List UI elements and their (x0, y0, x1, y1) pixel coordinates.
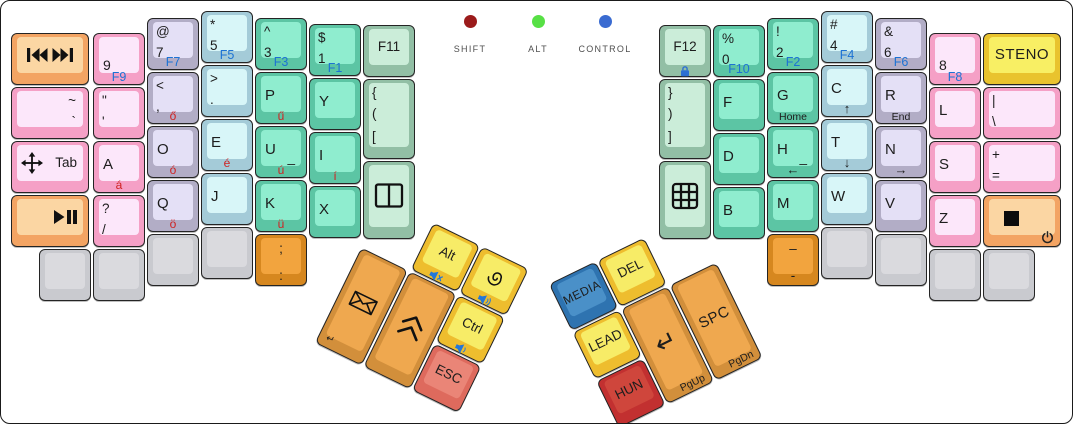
alt-indicator-dot (532, 15, 545, 28)
key-label: = (992, 169, 1000, 183)
key-media-prev-next[interactable] (11, 33, 89, 85)
keycap-top (989, 199, 1055, 235)
key-label: ü (256, 218, 306, 230)
keycap-top (989, 91, 1055, 127)
key-blank-right-3[interactable] (929, 249, 981, 301)
move-icon (21, 142, 43, 183)
media-prev-next-icon (12, 34, 88, 75)
key-label: End (876, 112, 926, 123)
key-f11[interactable]: F11 (363, 25, 415, 77)
key-label: J (211, 189, 219, 204)
key-label: Z (939, 211, 948, 226)
keycap-top (99, 253, 139, 289)
control-indicator-dot (599, 15, 612, 28)
grid-icon (660, 162, 710, 229)
key-amp-6[interactable]: &6F6 (875, 18, 927, 70)
key-window-split[interactable] (363, 161, 415, 239)
key-blank-right-4[interactable] (983, 249, 1035, 301)
key-y[interactable]: Y (309, 78, 361, 130)
keycap-top (207, 231, 247, 267)
control-indicator-label: CONTROL (563, 44, 647, 54)
key-label: ' (102, 115, 105, 129)
keycap-top (935, 253, 975, 289)
key-label: K (265, 196, 275, 211)
key-m[interactable]: M (767, 180, 819, 232)
key-r[interactable]: REnd (875, 72, 927, 124)
key-label: Y (319, 94, 329, 109)
key-play-pause[interactable] (11, 195, 89, 247)
key-label: + (992, 148, 1000, 162)
key-endash-hyphen[interactable]: –- (767, 234, 819, 286)
key-label: Q (157, 196, 169, 211)
key-blank-left-2[interactable] (93, 249, 145, 301)
key-w[interactable]: W (821, 173, 873, 225)
key-label: ^ (264, 25, 270, 39)
key-label: / (102, 223, 106, 237)
key-semicolon-colon[interactable]: ;: (255, 234, 307, 286)
key-blank-left-1[interactable] (39, 249, 91, 301)
key-tilde-backtick[interactable]: ~` (11, 87, 89, 139)
key-label: C (831, 81, 842, 96)
key-label: F (723, 95, 732, 110)
key-quote-apostrophe[interactable]: "' (93, 87, 145, 139)
key-label: ! (776, 25, 780, 39)
key-label: ; (256, 242, 306, 256)
key-label: F2 (768, 56, 818, 69)
key-s[interactable]: S (929, 141, 981, 193)
keycap-top (45, 253, 85, 289)
key-label: – (768, 242, 818, 256)
key-o[interactable]: Oó (147, 126, 199, 178)
key-star-5[interactable]: *5F5 (201, 11, 253, 63)
key-tab[interactable]: Tab (11, 141, 89, 193)
key-label: > (210, 72, 218, 86)
keycap-top (827, 231, 867, 267)
key-label: F10 (714, 63, 764, 76)
key-label: Tab (55, 142, 77, 183)
key-grid[interactable] (659, 161, 711, 239)
key-v[interactable]: V (875, 180, 927, 232)
key-label: T (831, 135, 840, 150)
key-i[interactable]: Ií (309, 132, 361, 184)
key-b[interactable]: B (713, 187, 765, 239)
key-label: ó (148, 164, 198, 176)
key-t[interactable]: T↓ (821, 119, 873, 171)
key-label: ö (148, 218, 198, 230)
key-stop-power[interactable] (983, 195, 1061, 247)
key-label: F6 (876, 56, 926, 69)
key-label: & (884, 25, 893, 39)
key-caret-3[interactable]: ^3F3 (255, 18, 307, 70)
key-label: $ (318, 31, 326, 45)
key-label: V (885, 196, 895, 211)
key-label: * (210, 18, 215, 32)
key-label: ú (256, 164, 306, 176)
lock-icon (660, 65, 710, 77)
key-label: ) (668, 107, 673, 121)
key-label: A (103, 157, 113, 172)
vsplit-icon (364, 162, 414, 229)
key-label: ( (372, 107, 377, 121)
key-label: ] (668, 130, 672, 144)
key-label: STENO (984, 34, 1060, 75)
key-q[interactable]: Qö (147, 180, 199, 232)
key-label: F3 (256, 56, 306, 69)
key-n[interactable]: N→ (875, 126, 927, 178)
key-label: | (992, 94, 996, 108)
key-open-brackets[interactable]: {([ (363, 79, 415, 159)
key-label: B (723, 203, 733, 218)
key-percent-0[interactable]: %0F10 (713, 25, 765, 77)
key-pipe-backslash[interactable]: |\ (983, 87, 1061, 139)
key-label: é (202, 157, 252, 169)
key-label: ? (102, 202, 110, 216)
key-k[interactable]: Kü (255, 180, 307, 232)
keyboard-layout-canvas: ~`Tab9F9"'Aá?/@7F7<,őOóQö*5F5>.EéJ^3F3Pű… (0, 0, 1073, 424)
key-label: G (777, 88, 789, 103)
key-label: í (310, 170, 360, 182)
key-p[interactable]: Pű (255, 72, 307, 124)
stop-icon (1004, 211, 1019, 226)
key-label: F4 (822, 49, 872, 62)
key-label: U (265, 142, 276, 157)
key-label: ` (72, 115, 77, 129)
key-hash-4[interactable]: #4F4 (821, 11, 873, 63)
indicator-control: CONTROL (563, 15, 647, 54)
key-exclam-2[interactable]: !2F2 (767, 18, 819, 70)
key-greater-period[interactable]: >. (201, 65, 253, 117)
play-pause-icon (54, 196, 77, 237)
key-label: ~ (68, 94, 76, 108)
key-label: M (777, 196, 790, 211)
key-label: F8 (930, 71, 980, 84)
key-label: ← (768, 163, 818, 176)
key-label: < (156, 79, 164, 93)
key-label: @ (156, 25, 170, 39)
key-label: I (319, 148, 323, 163)
key-label: # (830, 18, 838, 32)
key-question-slash[interactable]: ?/ (93, 195, 145, 247)
shift-indicator-dot (464, 15, 477, 28)
key-less-comma[interactable]: <,ő (147, 72, 199, 124)
key-label: } (668, 86, 673, 100)
key-l[interactable]: L (929, 87, 981, 139)
key-label: " (102, 94, 107, 108)
keycap-top (881, 238, 921, 274)
key-label: Home (768, 112, 818, 123)
key-plus-equals[interactable]: += (983, 141, 1061, 193)
key-label: E (211, 135, 221, 150)
key-label: N (885, 142, 896, 157)
key-label: - (768, 269, 818, 283)
key-at-7[interactable]: @7F7 (147, 18, 199, 70)
key-label: : (256, 269, 306, 283)
key-label: X (319, 202, 329, 217)
key-f[interactable]: F (713, 79, 765, 131)
key-label: % (722, 32, 734, 46)
key-a[interactable]: Aá (93, 141, 145, 193)
key-label: \ (992, 115, 996, 129)
key-label: ő (148, 110, 198, 122)
key-label: F7 (148, 56, 198, 69)
key-e[interactable]: Eé (201, 119, 253, 171)
key-j[interactable]: J (201, 173, 253, 225)
key-label: ű (256, 110, 306, 122)
key-x[interactable]: X (309, 186, 361, 238)
key-steno[interactable]: STENO (983, 33, 1061, 85)
key-d[interactable]: D (713, 133, 765, 185)
key-blank-left-4[interactable] (201, 227, 253, 279)
key-label: ↑ (822, 102, 872, 115)
key-label: F1 (310, 62, 360, 75)
key-label: F5 (202, 49, 252, 62)
key-h[interactable]: H_← (767, 126, 819, 178)
key-blank-left-3[interactable] (147, 234, 199, 286)
key-label: . (210, 93, 214, 107)
key-label: ↓ (822, 156, 872, 169)
key-label: O (157, 142, 169, 157)
power-icon (1041, 231, 1054, 244)
key-f12[interactable]: F12 (659, 25, 711, 77)
key-label: → (876, 163, 926, 176)
key-dollar-1[interactable]: $1F1 (309, 24, 361, 76)
key-label: L (939, 103, 947, 118)
keycap-top (989, 253, 1029, 289)
key-label: R (885, 88, 896, 103)
key-label: D (723, 149, 734, 164)
key-label: F12 (660, 26, 710, 67)
key-blank-right-1[interactable] (821, 227, 873, 279)
keycap-top (153, 238, 193, 274)
key-label: _ (287, 151, 295, 165)
key-label: S (939, 157, 949, 172)
key-label: F11 (364, 26, 414, 67)
key-label: P (265, 88, 275, 103)
key-label: á (94, 179, 144, 191)
key-label: H (777, 142, 788, 157)
key-label: W (831, 189, 845, 204)
key-close-brackets[interactable]: })] (659, 79, 711, 159)
key-z[interactable]: Z (929, 195, 981, 247)
key-u[interactable]: U_ú (255, 126, 307, 178)
key-label: F9 (94, 71, 144, 84)
key-c[interactable]: C↑ (821, 65, 873, 117)
key-blank-right-2[interactable] (875, 234, 927, 286)
key-8[interactable]: 8F8 (929, 33, 981, 85)
key-label: { (372, 86, 377, 100)
key-g[interactable]: GHome (767, 72, 819, 124)
key-label: [ (372, 130, 376, 144)
key-9[interactable]: 9F9 (93, 33, 145, 85)
